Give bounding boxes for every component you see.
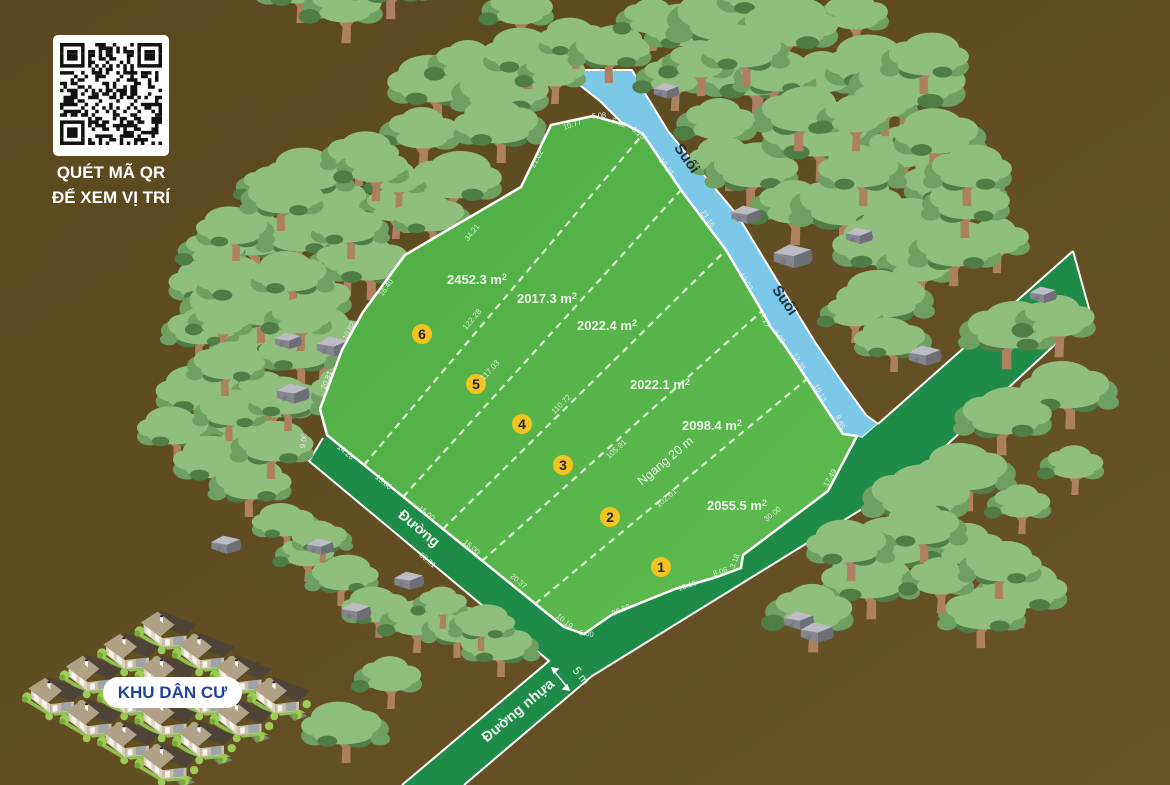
svg-text:6: 6 (418, 326, 426, 342)
svg-text:6.08: 6.08 (591, 110, 607, 120)
svg-text:2022.1 m2: 2022.1 m2 (630, 377, 690, 392)
svg-text:KHU DÂN CƯ: KHU DÂN CƯ (118, 683, 228, 702)
svg-text:QUÉT MÃ QR: QUÉT MÃ QR (57, 162, 166, 182)
svg-text:2055.5 m2: 2055.5 m2 (707, 498, 767, 513)
svg-text:2098.4 m2: 2098.4 m2 (682, 418, 742, 433)
svg-text:5: 5 (472, 376, 480, 392)
svg-text:ĐỂ XEM VỊ TRÍ: ĐỂ XEM VỊ TRÍ (52, 188, 171, 207)
svg-text:3: 3 (559, 457, 567, 473)
svg-text:2: 2 (606, 509, 614, 525)
svg-text:2452.3 m2: 2452.3 m2 (447, 272, 507, 287)
svg-text:2022.4 m2: 2022.4 m2 (577, 318, 637, 333)
svg-text:4: 4 (518, 416, 526, 432)
svg-text:2017.3 m2: 2017.3 m2 (517, 291, 577, 306)
svg-text:9.00: 9.00 (298, 433, 309, 449)
svg-text:1: 1 (657, 559, 665, 575)
